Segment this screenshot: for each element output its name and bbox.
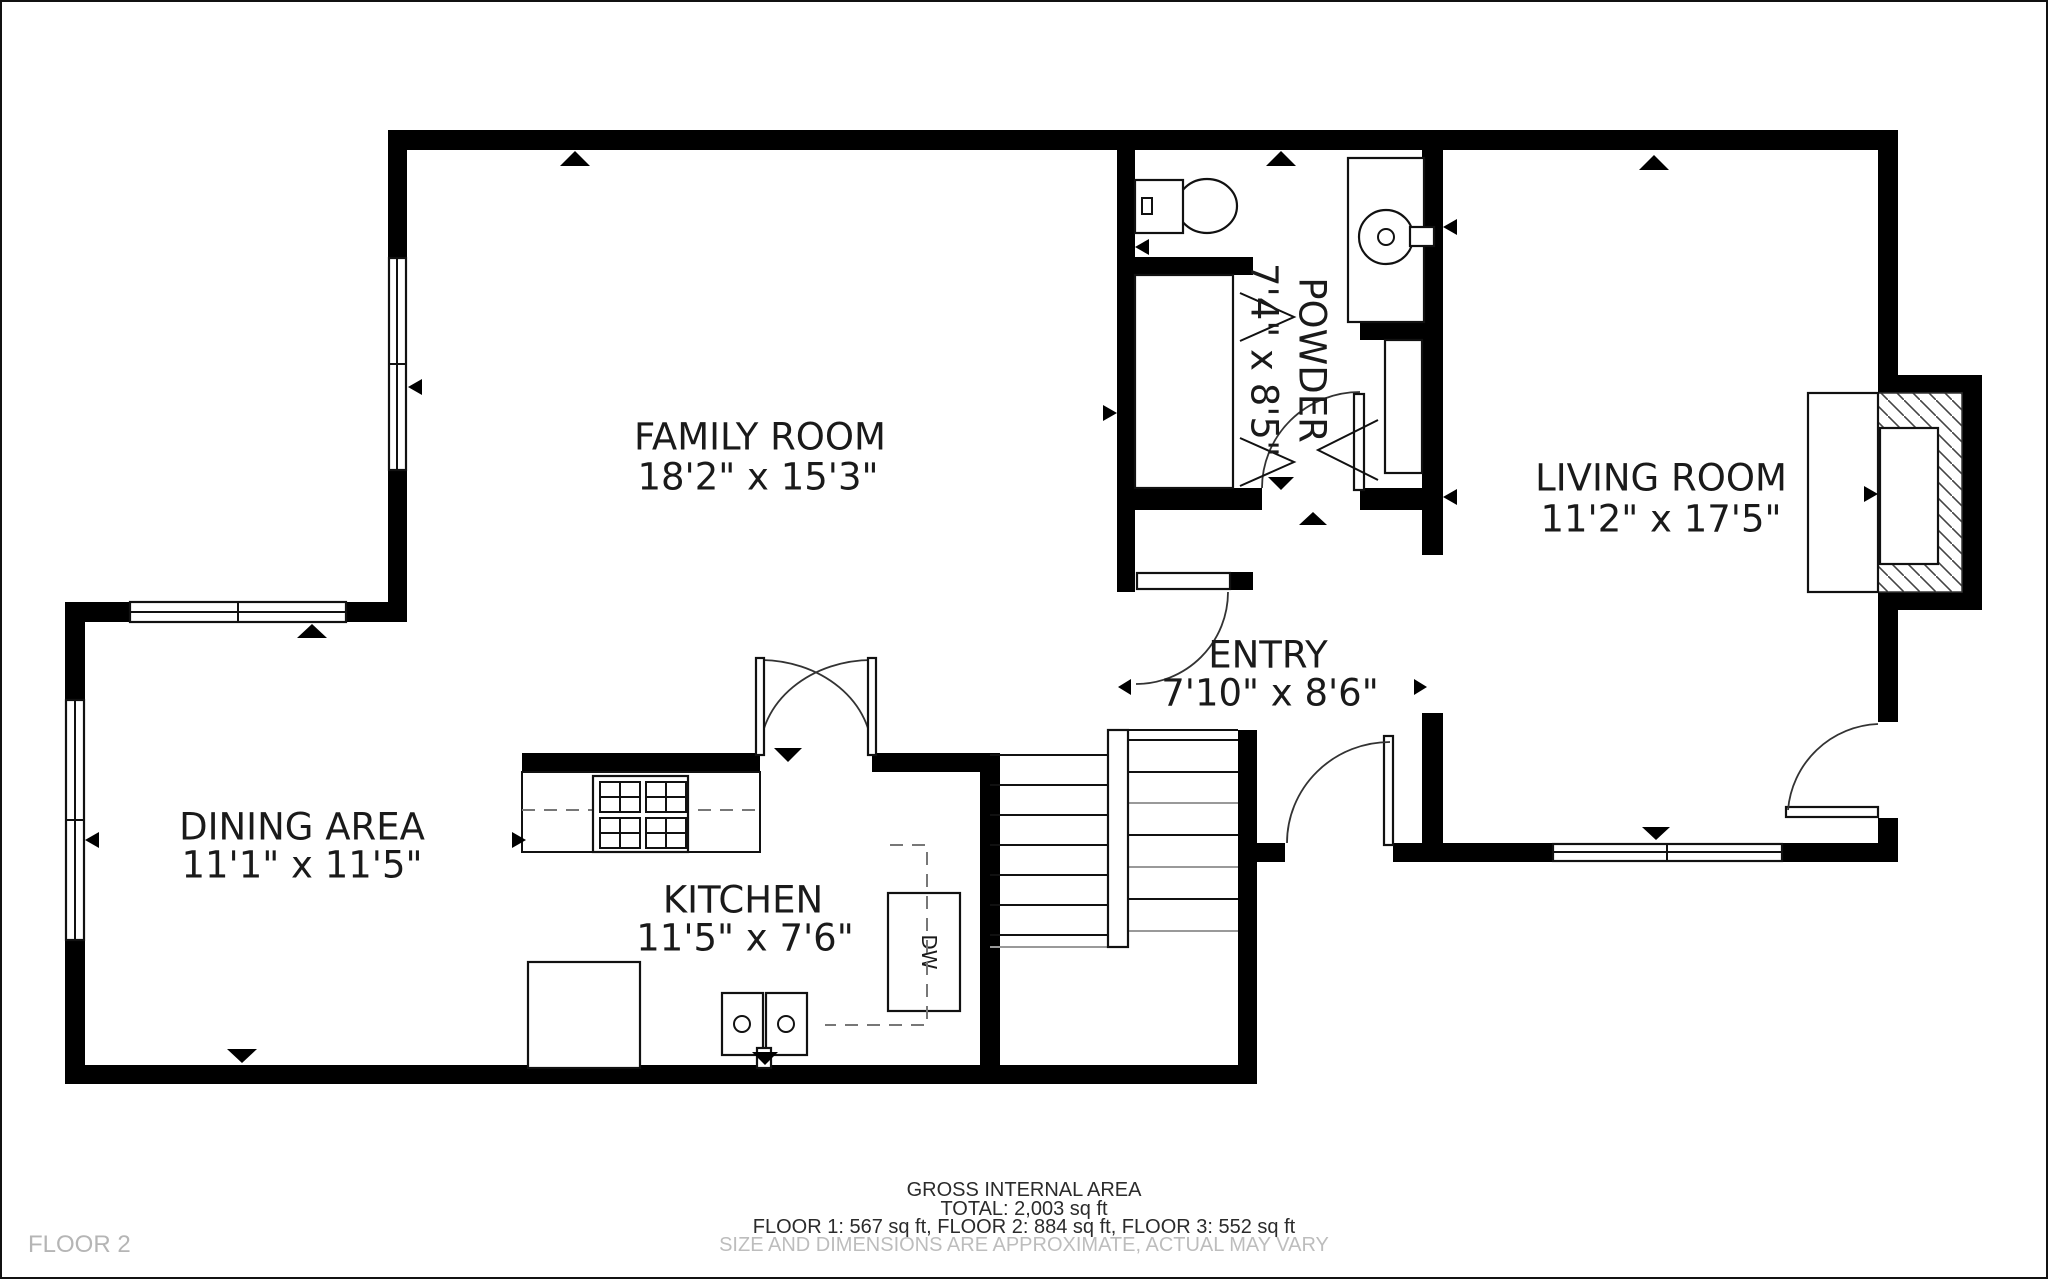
wall-powder-toilet bbox=[1135, 257, 1253, 275]
living-room-dims: 11'2" x 17'5" bbox=[1540, 498, 1781, 541]
triangle-marker bbox=[1266, 151, 1296, 166]
wall-top bbox=[388, 130, 1898, 150]
wall-vestibule-cap bbox=[1230, 572, 1253, 590]
living-exterior-door bbox=[1786, 724, 1878, 817]
fireplace bbox=[1808, 375, 1982, 610]
triangle-marker bbox=[1135, 239, 1149, 255]
dining-area-dims: 11'1" x 11'5" bbox=[181, 844, 422, 887]
triangle-marker bbox=[560, 151, 590, 166]
powder-label: POWDER bbox=[1291, 277, 1334, 443]
powder-dims: 7'4" x 8'5" bbox=[1243, 263, 1286, 457]
window-dining-left bbox=[66, 700, 84, 940]
coat-closet bbox=[1385, 340, 1422, 473]
wall-living-right-lower bbox=[1878, 818, 1898, 862]
triangle-marker bbox=[408, 379, 422, 395]
wall-entry-south-b bbox=[1393, 843, 1553, 862]
window-living-bottom bbox=[1553, 844, 1782, 861]
triangle-marker bbox=[227, 1049, 257, 1063]
fireplace-wall-right bbox=[1962, 375, 1982, 610]
kitchen-label: KITCHEN bbox=[663, 879, 823, 922]
wall-living-left-upper bbox=[1422, 150, 1443, 555]
wall-bottom bbox=[65, 1065, 1257, 1084]
kitchen-double-doors bbox=[756, 658, 876, 755]
page-border bbox=[1, 1, 2047, 1278]
living-room-label: LIVING ROOM bbox=[1535, 457, 1787, 500]
triangle-marker bbox=[1268, 477, 1294, 490]
stair-treads-right bbox=[1128, 730, 1238, 931]
footer: GROSS INTERNAL AREA TOTAL: 2,003 sq ft F… bbox=[28, 1179, 1329, 1258]
fireplace-firebox bbox=[1880, 428, 1938, 564]
triangle-marker bbox=[1414, 679, 1427, 695]
triangle-marker bbox=[1443, 489, 1457, 505]
kitchen-dims: 11'5" x 7'6" bbox=[636, 917, 854, 960]
dishwasher: DW bbox=[888, 893, 960, 1011]
floor-number-tag: FLOOR 2 bbox=[28, 1231, 131, 1258]
entry-south-door bbox=[1287, 736, 1393, 845]
window-family-left bbox=[389, 258, 406, 470]
wall-stair-right bbox=[1238, 730, 1257, 1065]
window-dining-top bbox=[130, 602, 346, 622]
stair-treads-left bbox=[990, 755, 1108, 935]
entry-dims: 7'10" x 8'6" bbox=[1161, 672, 1379, 715]
sink-faucet bbox=[1410, 227, 1434, 246]
triangle-marker bbox=[1639, 155, 1669, 170]
wall-coat-closet-top bbox=[1360, 322, 1422, 340]
family-room-dims: 18'2" x 15'3" bbox=[637, 456, 878, 499]
hall-closet bbox=[1135, 275, 1233, 488]
fridge-icon bbox=[528, 962, 640, 1068]
sink-icon bbox=[1359, 210, 1413, 264]
stair-rail bbox=[1108, 730, 1128, 947]
floorplan-canvas: DW bbox=[0, 0, 2048, 1279]
triangle-marker bbox=[1443, 219, 1457, 235]
entry-label: ENTRY bbox=[1208, 634, 1328, 677]
wall-entry-south-a bbox=[1257, 843, 1285, 862]
wall-living-right-upper bbox=[1878, 130, 1898, 375]
toilet-icon bbox=[1177, 179, 1237, 233]
triangle-marker bbox=[85, 832, 99, 848]
family-room-label: FAMILY ROOM bbox=[634, 416, 886, 459]
kitchen-doorway-opening bbox=[760, 753, 872, 772]
fireplace-wall-bottom bbox=[1878, 592, 1982, 610]
triangle-marker bbox=[1642, 827, 1670, 840]
wall-closet-bottom bbox=[1135, 488, 1262, 510]
triangle-marker bbox=[297, 624, 327, 638]
triangle-marker bbox=[1299, 512, 1327, 525]
wall-family-left-lower bbox=[388, 470, 407, 622]
dishwasher-label: DW bbox=[917, 934, 941, 969]
wall-living-right-mid bbox=[1878, 610, 1898, 722]
triangle-marker bbox=[1103, 405, 1117, 421]
dining-area-label: DINING AREA bbox=[179, 806, 425, 849]
staircase bbox=[990, 730, 1238, 947]
wall-family-left-upper bbox=[388, 130, 407, 258]
wall-living-left-lower bbox=[1422, 713, 1443, 862]
triangle-marker bbox=[1118, 679, 1131, 695]
triangle-marker bbox=[512, 832, 526, 848]
disclaimer: SIZE AND DIMENSIONS ARE APPROXIMATE, ACT… bbox=[719, 1234, 1329, 1256]
wall-family-right bbox=[1117, 150, 1135, 592]
floorplan-page: DW bbox=[0, 0, 2048, 1279]
